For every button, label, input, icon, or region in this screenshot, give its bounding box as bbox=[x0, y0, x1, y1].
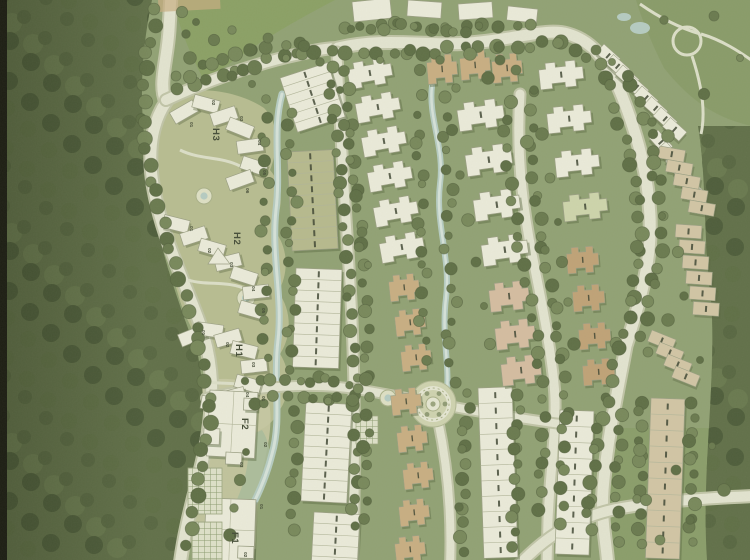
scan-overlay bbox=[0, 0, 750, 560]
master-plan-map: H3 H2 H1 F2 F1 0102030405060102030405010… bbox=[0, 0, 750, 560]
master-plan-page: H3 H2 H1 F2 F1 0102030405060102030405010… bbox=[0, 0, 750, 560]
